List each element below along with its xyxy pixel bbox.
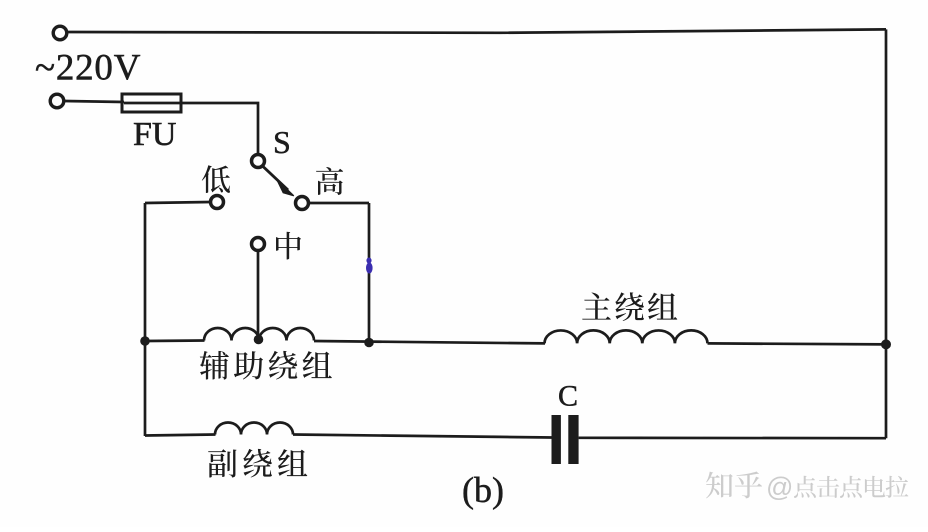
svg-text:FU: FU (133, 116, 176, 153)
svg-text:@: @ (766, 472, 793, 502)
svg-text:~220V: ~220V (35, 48, 141, 89)
svg-text:(b): (b) (462, 470, 504, 510)
svg-text:S: S (273, 124, 291, 160)
svg-text:C: C (558, 380, 578, 413)
